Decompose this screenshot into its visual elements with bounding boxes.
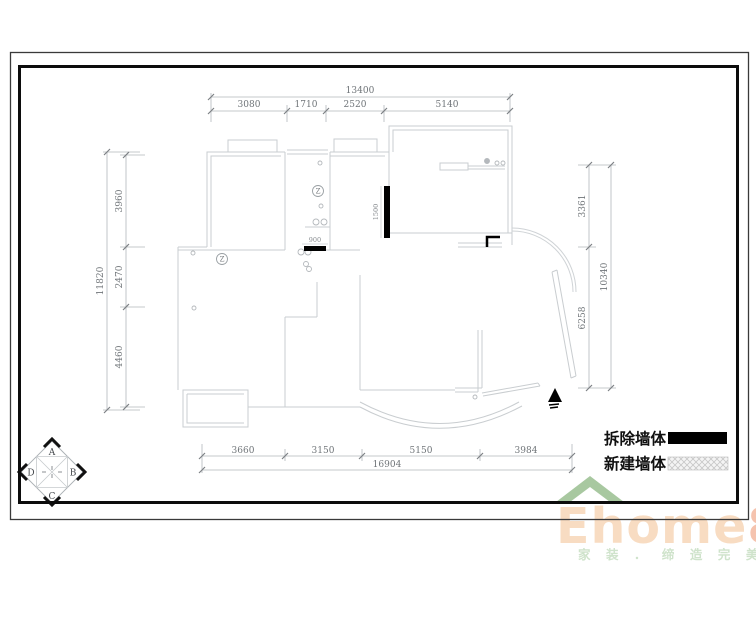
dim-left-seg1: 3960 [115,189,125,212]
inline-dim-1500: 1500 [372,204,380,221]
plan-fixtures [191,159,505,400]
plan-z-symbols: Z Z [217,186,324,265]
column-corner-mark [487,237,500,247]
dim-top-seg1: 3080 [238,100,261,110]
legend-newwall-label: 新建墙体 [604,454,667,473]
entrance-arrow-icon [548,388,562,408]
dim-bottom-seg4: 3984 [515,446,538,456]
demolish-wall-marks: 1500 900 [302,186,562,408]
dim-right-seg2: 6258 [578,306,588,329]
dim-right-seg1: 3361 [578,195,588,218]
z-symbol-1: Z [316,188,321,196]
watermark-tagline: 家 装 ． 缔 造 完 美 生 活 [578,547,756,562]
wall-legend: 拆除墙体 新建墙体 [604,429,728,473]
z-symbol-2: Z [220,256,225,264]
floor-plan-sheet: Ehome8 家 装 ． 缔 造 完 美 生 活 [0,0,756,630]
dim-top-seg4: 5140 [436,100,459,110]
floor-plan-drawing: Ehome8 家 装 ． 缔 造 完 美 生 活 [0,0,756,630]
plan-walls [178,126,576,428]
elevation-compass: A B C D [19,439,85,505]
dim-left-total: 11820 [96,266,106,295]
compass-letter-b: B [70,469,77,479]
dim-top-seg3: 2520 [344,100,367,110]
dimension-labels: 13400 3080 1710 2520 5140 11820 3960 247… [96,86,610,470]
watermark-brand: Ehome8 [556,498,756,555]
dim-left-seg2: 2470 [115,265,125,288]
dim-bottom-seg3: 5150 [410,446,433,456]
dim-left-seg3: 4460 [115,345,125,368]
dim-bottom-seg1: 3660 [232,446,255,456]
dim-top-total: 13400 [346,86,375,96]
compass-letter-a: A [48,448,56,458]
compass-letter-c: C [49,492,56,502]
dim-right-total: 10340 [600,262,610,291]
dim-bottom-seg2: 3150 [312,446,335,456]
inline-dim-900: 900 [309,236,321,244]
legend-newwall-swatch [668,457,728,470]
dim-bottom-total: 16904 [373,460,402,470]
legend-demolish-label: 拆除墙体 [604,429,667,448]
legend-demolish-swatch [668,432,727,444]
dim-top-seg2: 1710 [295,100,318,110]
compass-letter-d: D [27,469,34,479]
dimension-ticks [104,94,614,473]
